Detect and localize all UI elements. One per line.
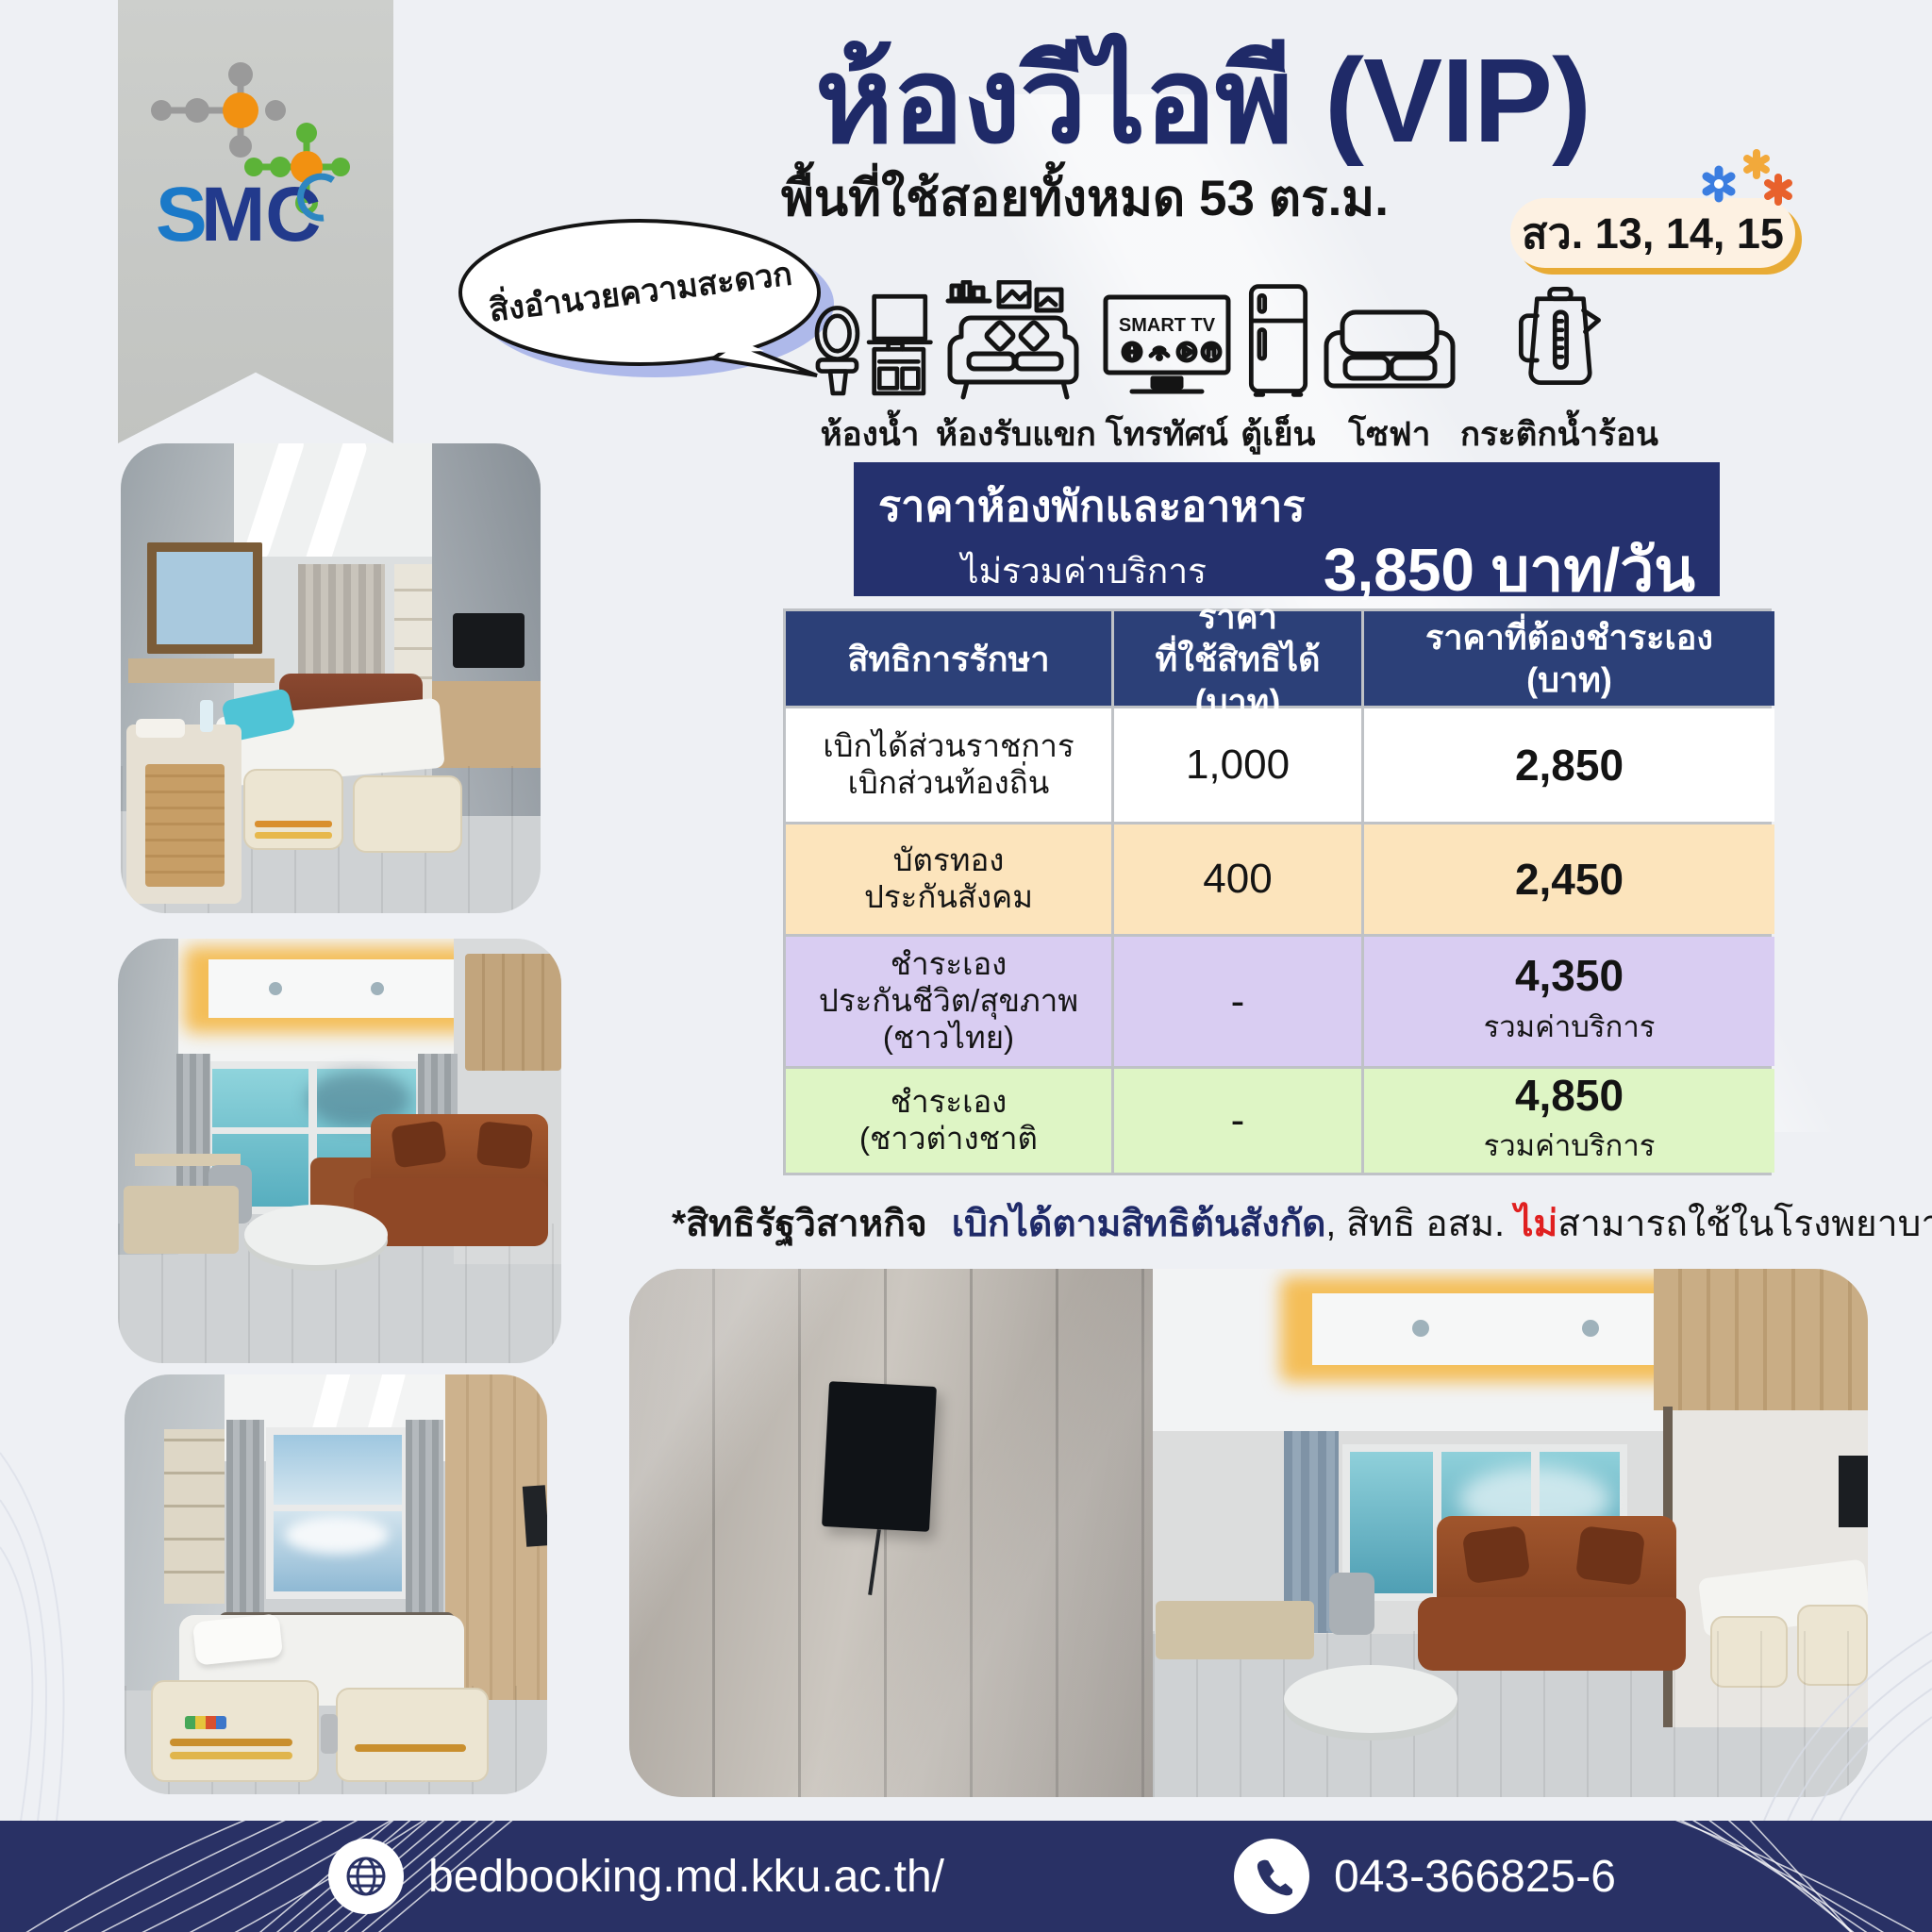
downlight [269, 982, 282, 995]
table-row-self-price-group: 4,350 รวมค่าบริการ [1364, 937, 1774, 1066]
table-row-self-price-note: รวมค่าบริการ [1484, 1003, 1656, 1050]
curtain [226, 1420, 264, 1620]
footer-bar: bedbooking.md.kku.ac.th/ 043-366825-6 [0, 1821, 1932, 1932]
coffee-table [1284, 1665, 1457, 1733]
bed-panel-stripe [355, 1744, 466, 1752]
amenity-television: SMART TV โทรทัศน์ [1096, 288, 1238, 460]
wall-cabinet [1654, 1269, 1868, 1410]
amenity-refrigerator: ตู้เย็น [1238, 278, 1319, 460]
footer-website-text[interactable]: bedbooking.md.kku.ac.th/ [428, 1851, 944, 1903]
amenity-sofa: โซฟา [1319, 305, 1460, 460]
coffee-table [244, 1205, 388, 1265]
downlight [371, 982, 384, 995]
window [266, 1427, 409, 1599]
sofa-pillow [1575, 1525, 1645, 1586]
table-row-plan: บัตรทอง ประกันสังคม [786, 824, 1111, 934]
table-row-self-price: 4,350 [1515, 953, 1624, 998]
price-per-day: 3,850 บาท/วัน [1324, 541, 1695, 599]
wall-tv [822, 1381, 937, 1532]
bed-panel-stripe [170, 1752, 292, 1759]
photo-living-room [118, 939, 561, 1363]
bed-panel-stripe [255, 832, 332, 839]
table-header-covered-price: ราคา ที่ใช้สิทธิได้ (บาท) [1114, 611, 1361, 706]
amenity-kettle: กระติกน้ำร้อน [1460, 284, 1658, 460]
amenity-label: ห้องรับแขก [936, 408, 1096, 460]
amenity-living-room: ห้องรับแขก [936, 280, 1096, 460]
footnote: *สิทธิรัฐวิสาหกิจเบิกได้ตามสิทธิต้นสังกั… [672, 1194, 1926, 1253]
picture-frame [147, 542, 262, 654]
adjacent-room-tv [1839, 1456, 1868, 1527]
price-banner-title: ราคาห้องพักและอาหาร [878, 472, 1695, 540]
footnote-red-highlight: ไม่ [1515, 1204, 1557, 1244]
amenity-label: ห้องน้ำ [821, 408, 920, 460]
pricing-table: สิทธิการรักษา ราคา ที่ใช้สิทธิได้ (บาท) … [783, 608, 1772, 1175]
amenity-label: ตู้เย็น [1241, 408, 1315, 460]
ceiling-recess [208, 959, 473, 1018]
corner-arc-decoration [0, 1396, 123, 1821]
price-banner-note: ไม่รวมค่าบริการ [961, 543, 1207, 599]
amenity-bathroom: ห้องน้ำ [804, 290, 936, 460]
bed-control-buttons [185, 1716, 226, 1729]
table-row-covered-price: 1,000 [1114, 708, 1361, 822]
curtain [406, 1420, 443, 1620]
smc-logo: S MC [139, 52, 373, 278]
smart-tv-icon: SMART TV [1096, 288, 1238, 403]
downlight [1582, 1320, 1599, 1337]
price-banner: ราคาห้องพักและอาหาร ไม่รวมค่าบริการ 3,85… [854, 462, 1720, 596]
footnote-navy-highlight: เบิกได้ตามสิทธิต้นสังกัด [952, 1204, 1326, 1244]
wall-cabinet [465, 954, 561, 1071]
table-row-self-price: 4,850 [1515, 1073, 1624, 1118]
corner-arc-decoration [1755, 1604, 1932, 1821]
amenity-label: โทรทัศน์ [1106, 408, 1228, 460]
footer-phone: 043-366825-6 [1234, 1839, 1616, 1914]
amenities-row: ห้องน้ำ ห้องรับแขก [804, 275, 1655, 460]
logo-letter-s: S [156, 172, 208, 258]
table-row-plan: ชำระเอง (ชาวต่างชาติ [786, 1069, 1111, 1173]
sofa-pillow [476, 1121, 534, 1170]
table-header-self-price: ราคาที่ต้องชำระเอง (บาท) [1364, 611, 1774, 706]
table-row-covered-price: 400 [1114, 824, 1361, 934]
table-row-self-price: 2,450 [1364, 824, 1774, 934]
smart-tv-label: SMART TV [1119, 315, 1216, 336]
bed-foot-panel [336, 1688, 489, 1782]
footer-website: bedbooking.md.kku.ac.th/ [328, 1839, 944, 1914]
kettle-icon [1510, 284, 1608, 403]
wood-panel [432, 681, 541, 768]
bed-foot-panel [353, 775, 462, 853]
wardrobe-gloss [629, 1269, 1153, 1797]
smc-ribbon: S MC [118, 0, 393, 443]
wall-ledge [128, 658, 275, 683]
toilet-icon [804, 290, 936, 403]
downlight [1412, 1320, 1429, 1337]
telephone [136, 719, 185, 738]
wall-tv [523, 1485, 547, 1547]
sofa-seat [1418, 1597, 1686, 1671]
pillow [192, 1613, 283, 1665]
flower-decoration-icon [1670, 149, 1802, 215]
photo-bedroom-1 [121, 443, 541, 913]
footnote-prefix: *สิทธิรัฐวิสาหกิจ [672, 1204, 927, 1244]
sofa-pillow [391, 1120, 447, 1168]
window-cloud [285, 1516, 389, 1554]
table-row-covered-price: - [1114, 1069, 1361, 1173]
bed-foot-panel [151, 1680, 319, 1782]
footnote-middle: , สิทธิ อสม. [1325, 1204, 1514, 1244]
window-mullion [270, 1505, 406, 1511]
vip-room-poster: S MC ห้องวีไอพี (VIP) พื้นที่ใช้สอยทั้งห… [0, 0, 1932, 1932]
table-row-self-price-group: 4,850 รวมค่าบริการ [1364, 1069, 1774, 1173]
cabinet-wood-front [145, 764, 225, 887]
table-row-plan: ชำระเอง ประกันชีวิต/สุขภาพ (ชาวไทย) [786, 937, 1111, 1066]
table-header-plan: สิทธิการรักษา [786, 611, 1111, 706]
phone-icon [1234, 1839, 1309, 1914]
shelf-unit [164, 1429, 225, 1604]
bench [124, 1186, 239, 1254]
sofa-icon [1319, 305, 1460, 403]
ceiling-recess [1312, 1293, 1682, 1365]
table-row-self-price-note: รวมค่าบริการ [1484, 1122, 1656, 1169]
fridge-icon [1238, 278, 1319, 403]
sofa-pillow [1462, 1525, 1531, 1585]
water-bottle [200, 700, 213, 732]
amenity-label: โซฟา [1348, 408, 1430, 460]
footer-phone-text[interactable]: 043-366825-6 [1334, 1851, 1616, 1903]
nurse-remote [321, 1714, 338, 1754]
bed-panel-stripe [170, 1739, 292, 1746]
bed-panel-stripe [255, 821, 332, 827]
photo-bedroom-2 [125, 1374, 547, 1794]
photo-living-room-large [629, 1269, 1868, 1797]
desk-chair [1329, 1573, 1374, 1635]
table-row-covered-price: - [1114, 937, 1361, 1066]
table-row-self-price: 2,850 [1364, 708, 1774, 822]
globe-icon [328, 1839, 404, 1914]
living-room-icon [941, 280, 1091, 403]
footnote-suffix: สามารถใช้ในโรงพยาบาลมหาวิทยาลัยได้ [1557, 1204, 1932, 1244]
wall-tv [453, 613, 525, 668]
amenity-label: กระติกน้ำร้อน [1460, 408, 1658, 460]
table-row-plan: เบิกได้ส่วนราชการ เบิกส่วนท้องถิ่น [786, 708, 1111, 822]
bench [1156, 1601, 1314, 1659]
